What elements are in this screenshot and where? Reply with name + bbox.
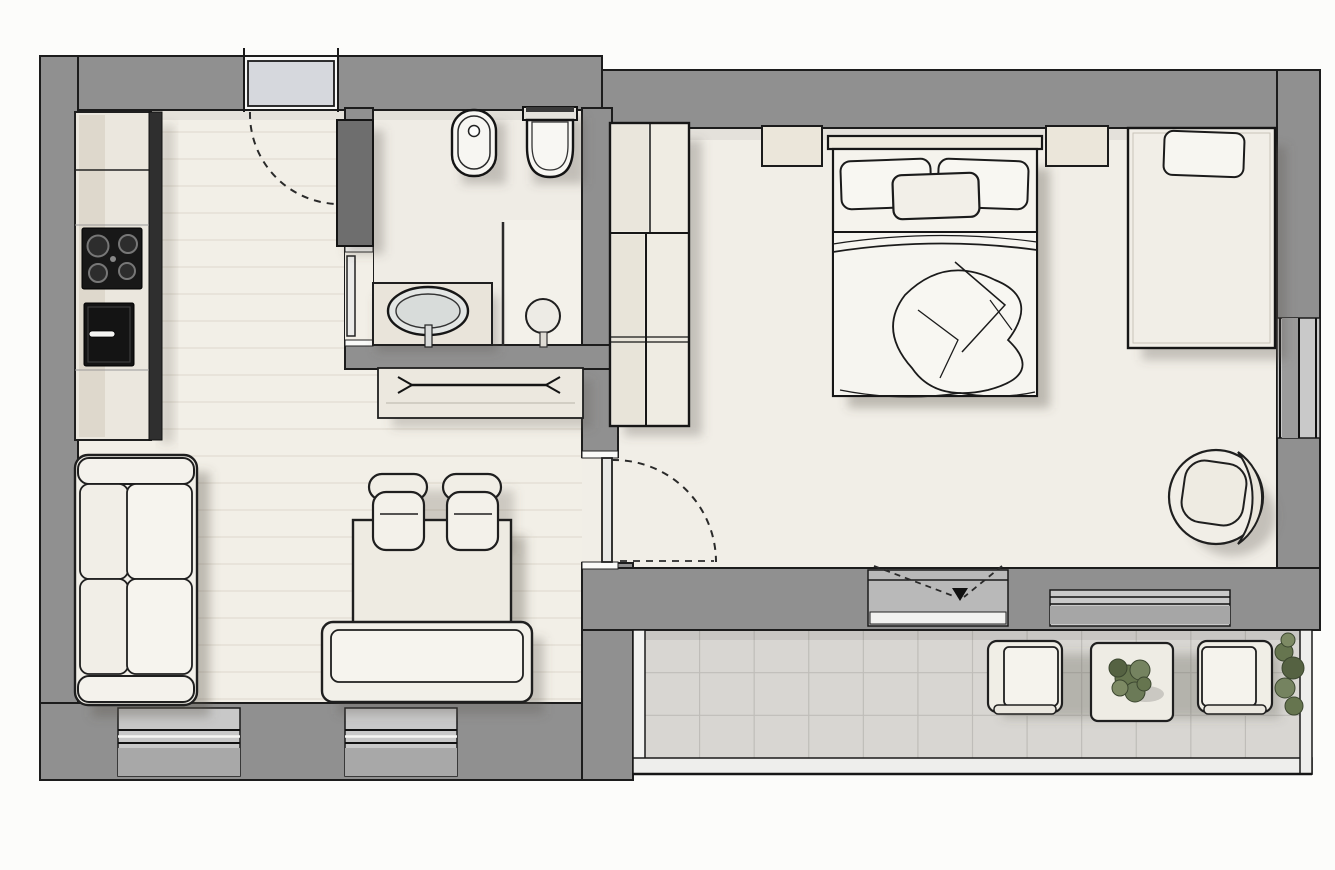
entry-tall-cabinet bbox=[337, 120, 373, 246]
dining-chair-seat bbox=[373, 492, 424, 550]
nightstand-left bbox=[762, 126, 822, 166]
wardrobe-shade-top bbox=[612, 125, 648, 231]
shower-stool bbox=[526, 299, 560, 333]
burner-icon bbox=[88, 236, 109, 257]
floor-plan-canvas bbox=[0, 0, 1335, 870]
round-chair-cushion bbox=[1179, 458, 1249, 528]
balcony-armchair-right-lip bbox=[1204, 705, 1266, 714]
window-living-2-dark bbox=[345, 748, 457, 776]
bed-headboard bbox=[828, 136, 1042, 149]
balcony-door-threshold bbox=[870, 612, 1006, 624]
sofa-seat-cushion bbox=[127, 484, 192, 579]
balcony-rail-left bbox=[633, 630, 645, 774]
balcony-armchair-left-lip bbox=[994, 705, 1056, 714]
bed-accent-pillow bbox=[892, 173, 979, 220]
corner-plant bbox=[1281, 633, 1295, 647]
window-living-1-dark bbox=[118, 748, 240, 776]
kitchen-counter-front-edge bbox=[149, 112, 162, 440]
sofa-armrest-bottom bbox=[78, 676, 194, 702]
corner-plant bbox=[1285, 697, 1303, 715]
toilet-bowl bbox=[527, 120, 573, 177]
sink-faucet bbox=[425, 325, 432, 347]
dining-bench-cushion bbox=[331, 630, 523, 682]
dining-chair-seat bbox=[447, 492, 498, 550]
bathroom-door-threshold-bottom bbox=[345, 340, 373, 346]
sofa-armrest-top bbox=[78, 458, 194, 484]
entry-door-panel bbox=[248, 61, 334, 106]
burner-icon bbox=[119, 263, 135, 279]
balcony-armchair-left-cushion bbox=[1004, 647, 1058, 706]
bedroom-door-threshold-top bbox=[582, 451, 618, 458]
balcony-wall-shade bbox=[645, 630, 1300, 640]
wall-bathroom-right bbox=[582, 108, 612, 348]
sofa-seat-cushion bbox=[127, 579, 192, 674]
bidet-faucet-hole bbox=[469, 126, 480, 137]
potted-plant bbox=[1109, 659, 1127, 677]
wall-left bbox=[40, 56, 78, 780]
sofa-back-cushion bbox=[80, 484, 128, 579]
daybed-pillow bbox=[1163, 131, 1244, 178]
balcony-rail-bottom bbox=[633, 758, 1312, 774]
hall-console bbox=[378, 368, 583, 418]
burner-icon bbox=[89, 264, 107, 282]
window-bedroom-balcony-dark bbox=[1050, 606, 1230, 624]
bathroom-door-leaf bbox=[347, 256, 355, 336]
burner-icon bbox=[119, 235, 137, 253]
shower-stool-base bbox=[540, 332, 547, 347]
floor-plan-image bbox=[0, 0, 1335, 870]
balcony-armchair-right-cushion bbox=[1202, 647, 1256, 706]
sofa-back-cushion bbox=[80, 579, 128, 674]
cooktop-knob-icon bbox=[110, 256, 116, 262]
toilet-tank-lid bbox=[526, 107, 574, 112]
potted-plant bbox=[1137, 677, 1151, 691]
corner-plant bbox=[1282, 657, 1304, 679]
nightstand-right bbox=[1046, 126, 1108, 166]
wardrobe-shade-left bbox=[612, 235, 644, 424]
wall-top-right bbox=[602, 70, 1320, 128]
plan-layers bbox=[0, 0, 1335, 870]
potted-plant bbox=[1112, 680, 1128, 696]
oven-handle bbox=[89, 331, 115, 337]
bedroom-door-threshold-bottom bbox=[582, 562, 618, 569]
bedroom-door-leaf bbox=[602, 458, 612, 562]
corner-plant bbox=[1275, 678, 1295, 698]
vanity-sink-basin bbox=[396, 294, 460, 328]
potted-plant bbox=[1130, 660, 1150, 680]
